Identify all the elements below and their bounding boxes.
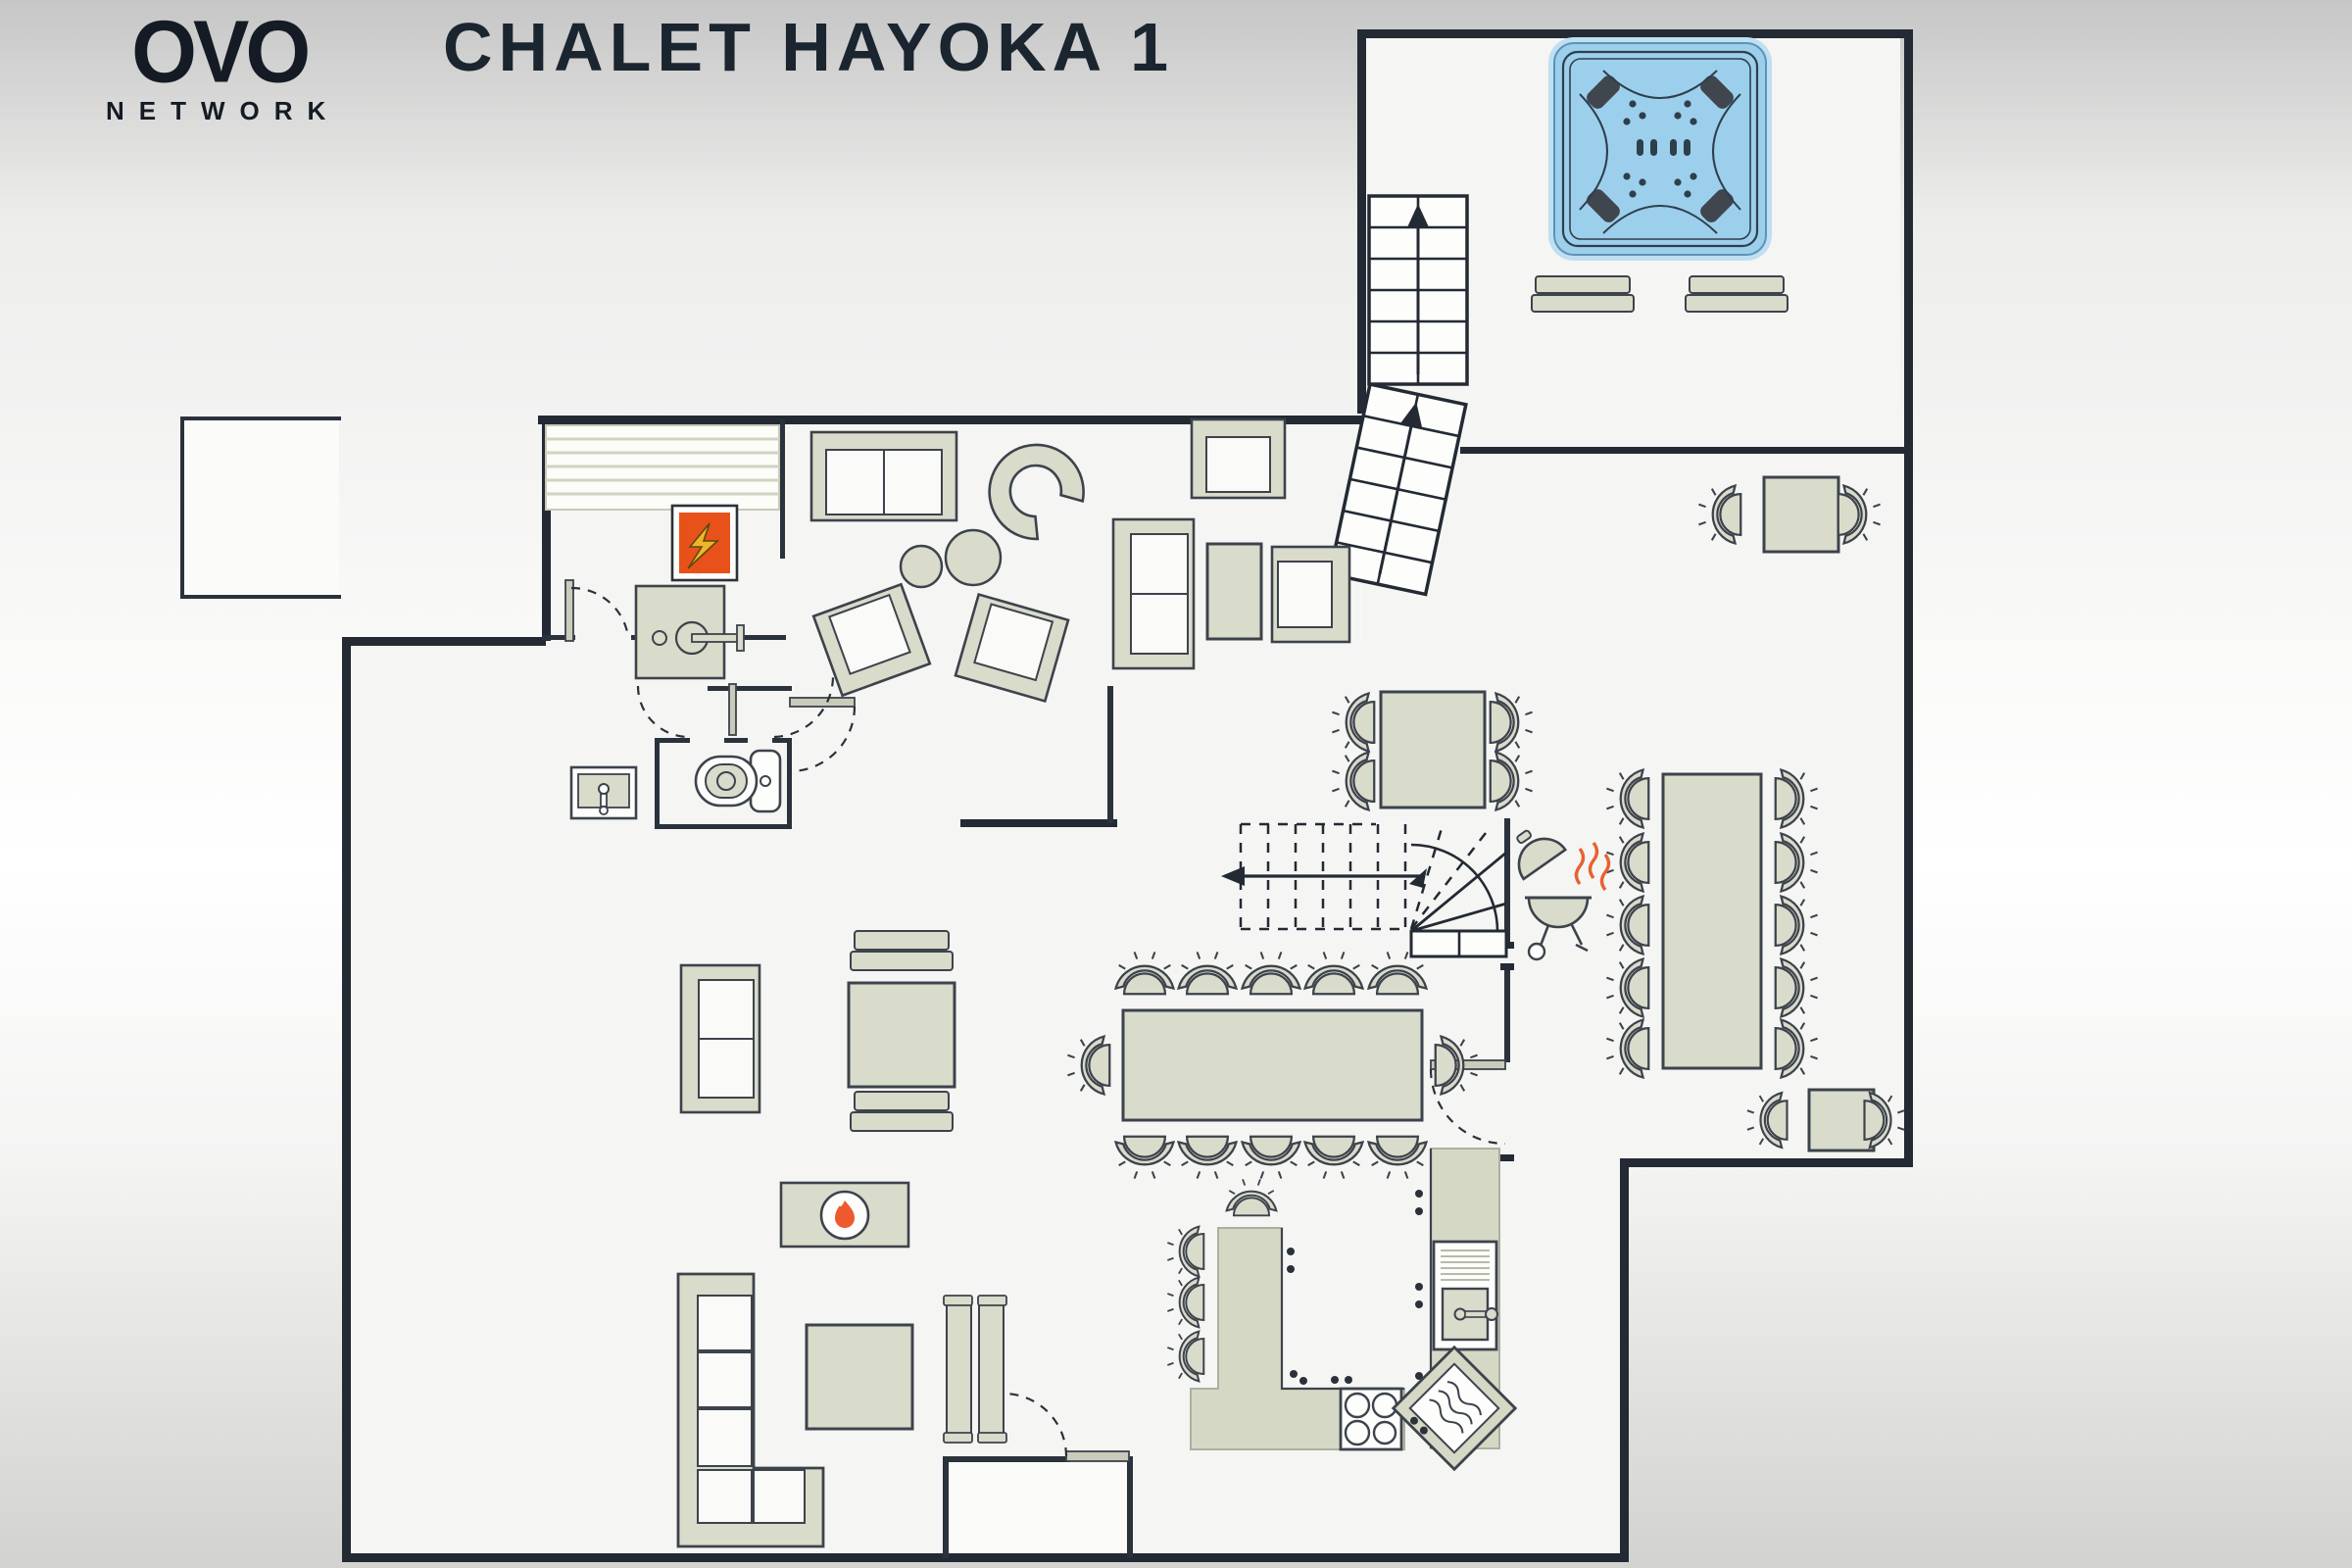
hot-tub xyxy=(1548,37,1772,261)
electrical-panel xyxy=(672,506,737,580)
wall-lounge-west xyxy=(1107,686,1113,823)
wall-hall-south xyxy=(960,819,1117,827)
wall-hall-divider xyxy=(708,686,792,691)
floor-plan-canvas xyxy=(0,0,2352,1568)
floor-plan-page: OVO NETWORK CHALET HAYOKA 1 xyxy=(0,0,2352,1568)
fireplace xyxy=(781,1183,908,1247)
wall-south xyxy=(342,1553,1629,1562)
terrace-table-2 xyxy=(1764,477,1838,552)
entry-porch-floor xyxy=(949,1462,1127,1553)
wall-kitchen-east xyxy=(1620,1158,1629,1562)
wall-porch-c xyxy=(180,595,341,599)
wall-kitchen-west-a xyxy=(1504,818,1510,944)
bench xyxy=(851,1092,953,1131)
wall-kitchen-west-b xyxy=(1504,968,1510,1062)
door-leaf xyxy=(790,698,855,707)
wall-wc-south xyxy=(655,824,792,829)
wall-wc-north-a xyxy=(655,738,690,743)
sofa-2-seat xyxy=(811,432,956,520)
wall-wc-north-b xyxy=(724,738,748,743)
sun-lounger xyxy=(1686,276,1788,312)
breakfast-table xyxy=(849,983,955,1087)
wall-porch-b xyxy=(180,416,184,599)
toilet xyxy=(696,751,780,811)
sofa-2-seat xyxy=(1113,519,1194,668)
door-post xyxy=(1500,1154,1514,1161)
coffee-table xyxy=(807,1325,912,1429)
door-leaf xyxy=(565,580,573,641)
wall-wc-north-c xyxy=(772,738,792,743)
wall-porch-a xyxy=(180,416,341,420)
armchair xyxy=(1192,419,1285,498)
door-post xyxy=(1500,963,1514,970)
dining-table-12 xyxy=(1123,1010,1422,1120)
bench xyxy=(851,931,953,970)
wall-terrace-west xyxy=(1357,29,1366,414)
sun-lounger xyxy=(1532,276,1634,312)
wall-wc-west xyxy=(655,738,660,829)
wall-west xyxy=(342,637,351,1562)
wall-entry-west xyxy=(943,1456,949,1558)
wall-terrace-south xyxy=(1620,1158,1913,1167)
ski-room-bench xyxy=(546,425,779,510)
wall-east xyxy=(1904,29,1913,1167)
sofa-2-seat xyxy=(681,965,759,1112)
round-pouf xyxy=(946,530,1001,585)
staircase-straight xyxy=(1369,196,1467,384)
lounge-table-4 xyxy=(1381,692,1485,808)
door-leaf xyxy=(1066,1451,1129,1461)
wall-terrace-top xyxy=(1357,29,1913,38)
wall-ski-east xyxy=(780,419,785,559)
armchair xyxy=(1272,547,1349,642)
kitchen-sink xyxy=(1434,1242,1497,1349)
wall-terrace-divider xyxy=(1460,447,1907,454)
wall-entry-east xyxy=(1127,1456,1133,1558)
round-pouf xyxy=(901,546,942,587)
terrace-table-10 xyxy=(1663,774,1761,1068)
wall-wc-east xyxy=(787,738,792,829)
door-leaf xyxy=(729,684,736,735)
wall-hall-step xyxy=(342,637,546,646)
coffee-table xyxy=(1207,544,1261,639)
wash-basin xyxy=(571,767,636,818)
porch-floor xyxy=(184,420,339,595)
wall-entry-north xyxy=(943,1456,1070,1462)
cooktop xyxy=(1341,1389,1401,1449)
